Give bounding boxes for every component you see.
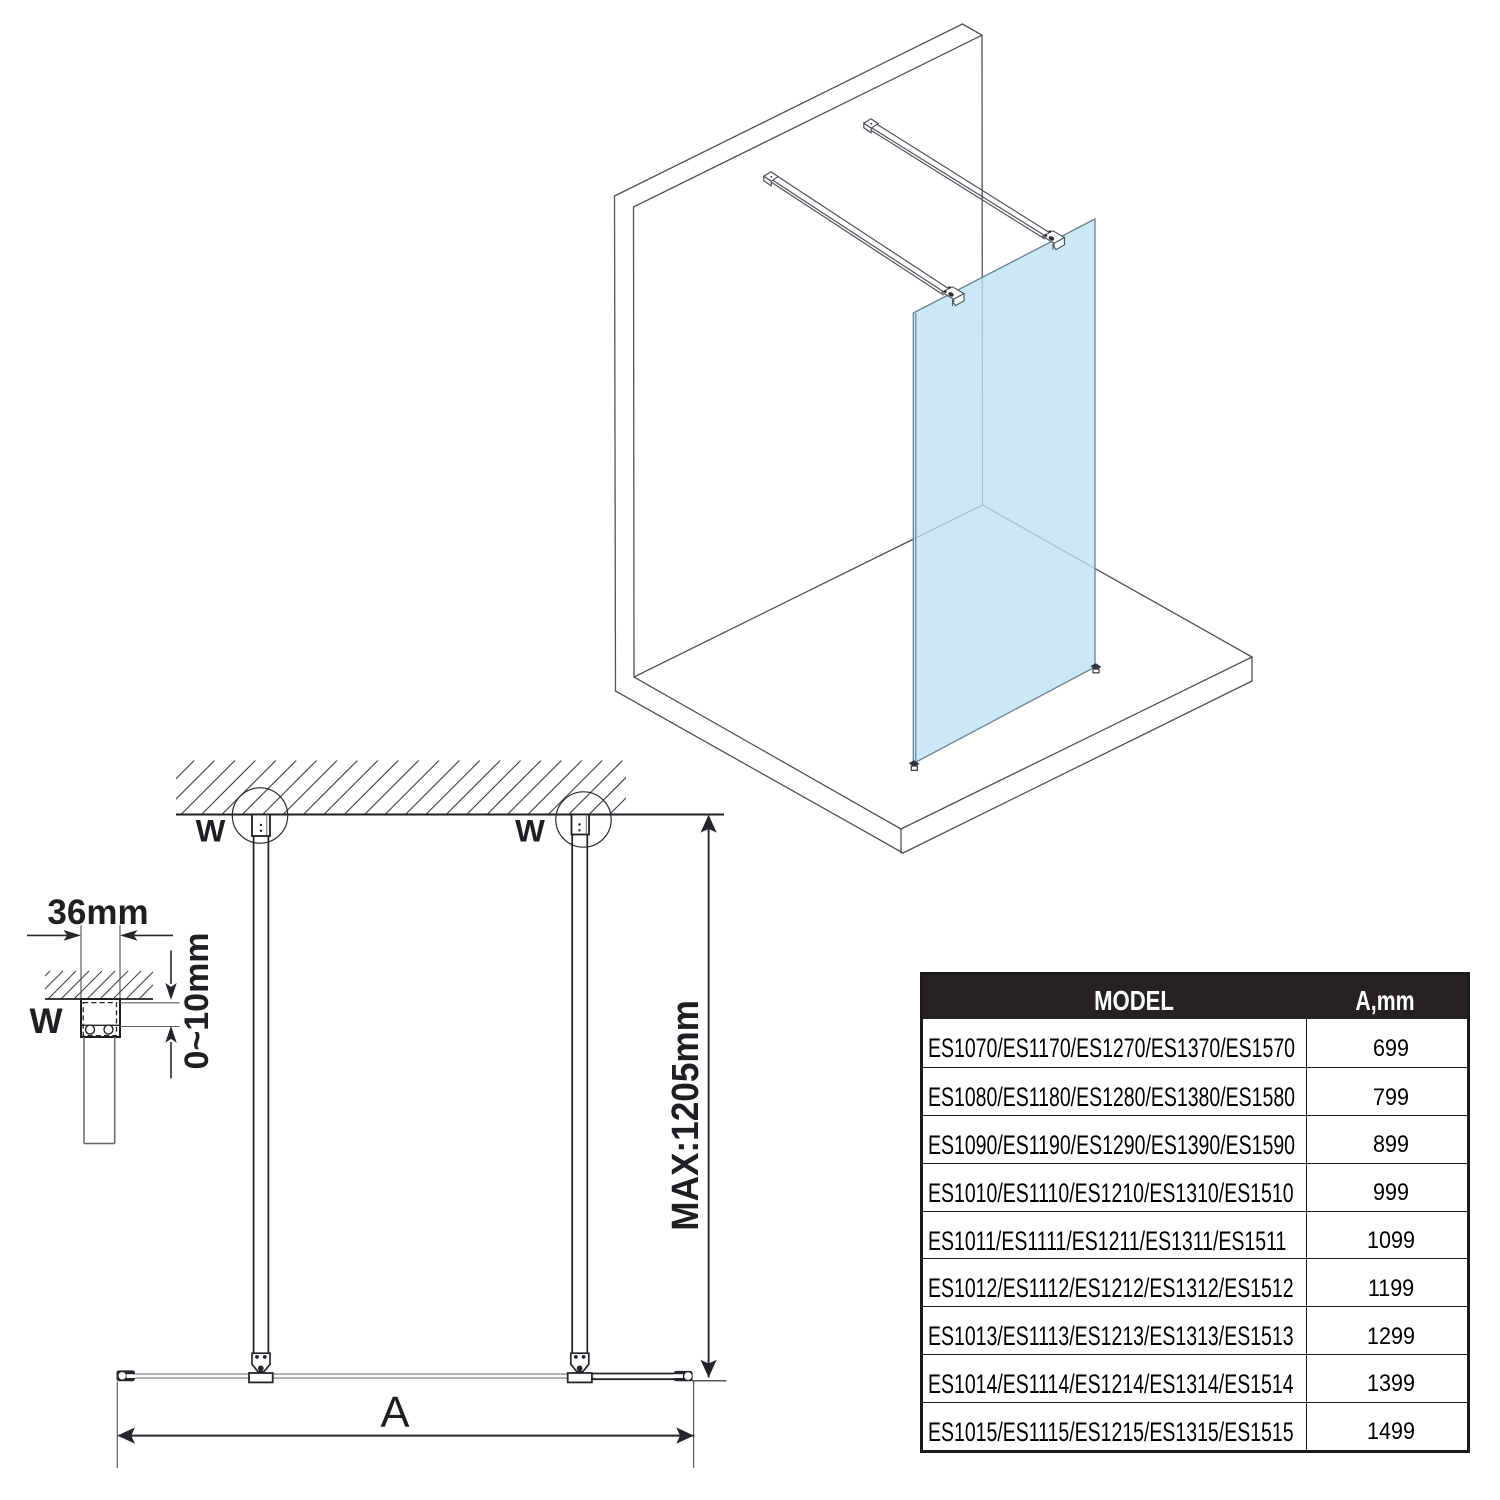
svg-text:0~10mm: 0~10mm xyxy=(178,932,216,1069)
svg-text:W: W xyxy=(29,1002,62,1041)
svg-text:A: A xyxy=(380,1389,409,1437)
svg-text:MAX:1205mm: MAX:1205mm xyxy=(664,1000,707,1231)
svg-text:W: W xyxy=(196,812,226,848)
svg-text:W: W xyxy=(515,812,545,848)
svg-text:36mm: 36mm xyxy=(47,893,148,932)
